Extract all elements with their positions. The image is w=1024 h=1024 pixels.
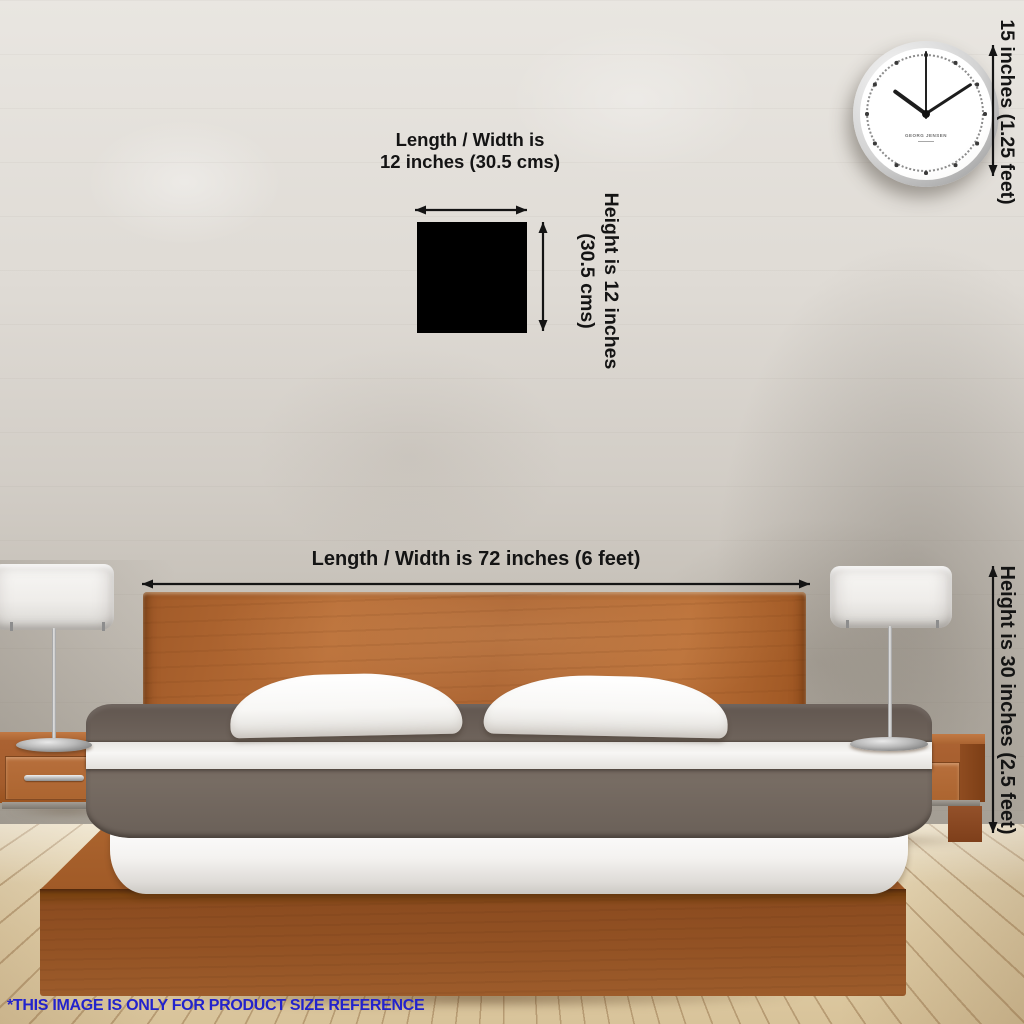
- square-size-label-line2: 12 inches (30.5 cms): [330, 151, 610, 173]
- lamp-left-tab: [10, 622, 13, 631]
- lamp-left-stem: [52, 628, 56, 742]
- square-size-label: Length / Width is 12 inches (30.5 cms): [330, 129, 610, 173]
- bed-width-arrow: [139, 577, 813, 591]
- lamp-right-tab: [846, 620, 849, 628]
- clock-center-hub: [922, 110, 930, 118]
- lamp-left-tab2: [102, 622, 105, 631]
- product-size-square: [417, 222, 527, 333]
- nightstand-left-handle: [24, 775, 84, 781]
- bed-height-label: Height is 30 inches (2.5 feet): [996, 566, 1018, 835]
- lamp-right-stem: [888, 626, 892, 742]
- nightstand-right-leg-right: [948, 806, 982, 842]
- lamp-right-base: [850, 737, 928, 751]
- nightstand-right-side: [960, 744, 985, 802]
- square-width-arrow: [412, 203, 530, 217]
- square-height-label-line1: Height is 12 inches: [599, 193, 623, 370]
- lamp-right-tab2: [936, 620, 939, 628]
- square-height-arrow: [536, 219, 550, 334]
- size-reference-image: GEORG JENSEN Length / Width is 12 inches…: [0, 0, 1024, 1024]
- square-height-label-line2: (30.5 cms): [575, 193, 599, 370]
- clock-height-label: 15 inches (1.25 feet): [996, 19, 1018, 204]
- square-height-label: Height is 12 inches (30.5 cms): [575, 193, 623, 370]
- lamp-left-shade: [0, 564, 114, 630]
- bed-platform-front: [40, 889, 906, 996]
- bed-sheet-stripe: [86, 742, 932, 769]
- clock-brand-text: GEORG JENSEN: [853, 133, 999, 138]
- lamp-left-base: [16, 738, 92, 752]
- lamp-right-shade: [830, 566, 952, 628]
- footer-disclaimer: *THIS IMAGE IS ONLY FOR PRODUCT SIZE REF…: [7, 997, 424, 1015]
- bed-width-label: Length / Width is 72 inches (6 feet): [276, 548, 676, 570]
- square-size-label-line1: Length / Width is: [330, 129, 610, 151]
- wall-clock: GEORG JENSEN: [853, 41, 999, 187]
- clock-brand-subline: [918, 141, 934, 142]
